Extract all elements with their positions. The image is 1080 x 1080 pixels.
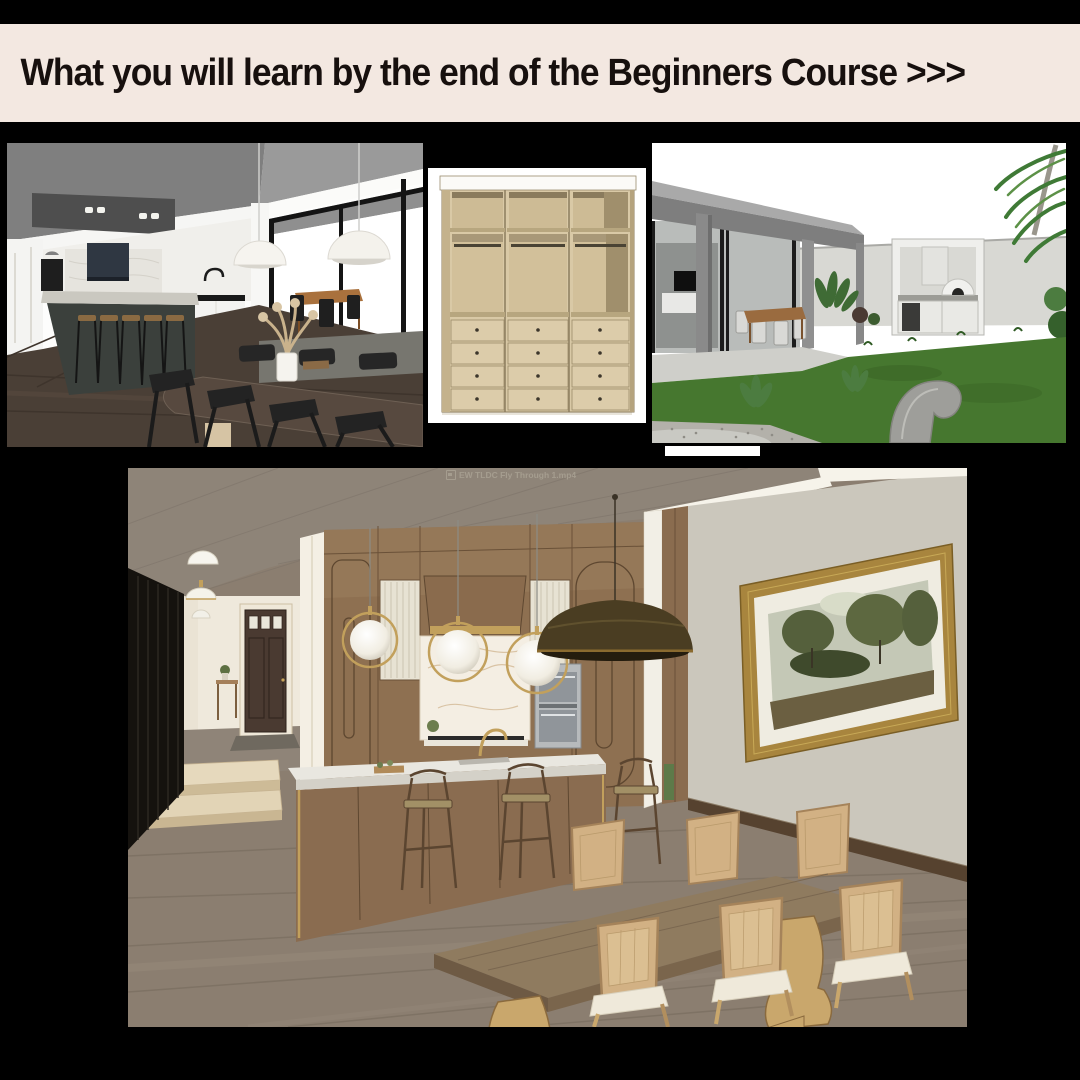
- render-dark-kitchen-dining: [7, 143, 423, 447]
- front-door: [240, 604, 292, 736]
- backyard-scene: [652, 143, 1066, 443]
- video-watermark-label: EW TLDC Fly Through 1.mp4: [459, 470, 576, 480]
- main-scene: [128, 468, 967, 1027]
- headline-banner: What you will learn by the end of the Be…: [0, 24, 1080, 122]
- cornice: [440, 176, 636, 190]
- render-wardrobe-joinery: [428, 168, 646, 423]
- watermark-cover-strip: [665, 446, 760, 456]
- range-hood: [87, 243, 129, 281]
- dark-kitchen-scene: [7, 143, 423, 447]
- social-graphic-canvas: What you will learn by the end of the Be…: [0, 0, 1080, 1080]
- wardrobe-scene: [428, 168, 646, 423]
- outdoor-kitchen: [892, 239, 984, 335]
- headline-text: What you will learn by the end of the Be…: [0, 54, 965, 92]
- wall-oven: [41, 259, 63, 291]
- wardrobe-interiors: [450, 192, 630, 317]
- video-watermark: EW TLDC Fly Through 1.mp4: [446, 469, 576, 481]
- render-backyard-pergola: [652, 143, 1066, 443]
- render-main-kitchen-dining: EW TLDC Fly Through 1.mp4: [128, 468, 967, 1027]
- wine-fridge: [902, 303, 920, 331]
- video-file-icon: [446, 470, 456, 480]
- range-hood: [424, 576, 526, 634]
